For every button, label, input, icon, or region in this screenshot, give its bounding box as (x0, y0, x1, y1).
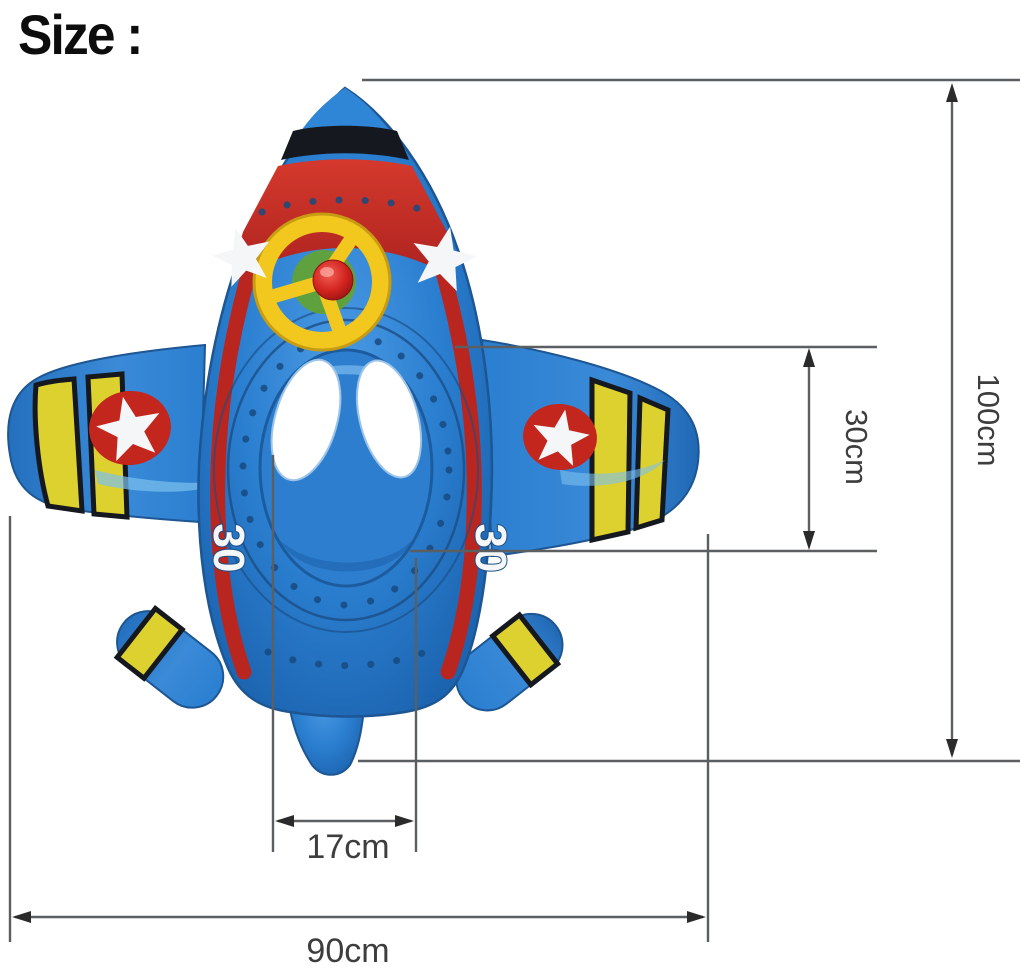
size-diagram-canvas: 30 30 (0, 0, 1020, 972)
dimension-label-30cm: 30cm (839, 409, 874, 485)
dimension-label-90cm: 90cm (306, 932, 389, 970)
float-number-left: 30 (204, 524, 253, 573)
float-number-right: 30 (466, 524, 515, 573)
right-wing-stripe-2 (636, 398, 668, 528)
seat-opening (259, 350, 432, 586)
arrowhead-left (12, 911, 31, 923)
arrowhead-down (946, 739, 958, 758)
left-wing-stripe-1 (35, 379, 82, 511)
ball-highlight (320, 267, 334, 277)
left-wing (8, 345, 230, 522)
right-wing-stripe-1 (592, 380, 630, 540)
arrowhead-down (803, 531, 815, 550)
wheel-horn-ball (313, 260, 353, 300)
product-size-diagram: Size : (0, 0, 1020, 972)
arrowhead-left (275, 815, 294, 827)
arrowhead-right (395, 815, 414, 827)
arrowhead-up (803, 348, 815, 367)
arrowhead-up (946, 83, 958, 102)
dimension-label-100cm: 100cm (971, 373, 1006, 466)
arrowhead-right (687, 911, 706, 923)
airplane-float-photo: 30 30 (8, 88, 699, 775)
dimension-label-17cm: 17cm (306, 828, 389, 866)
